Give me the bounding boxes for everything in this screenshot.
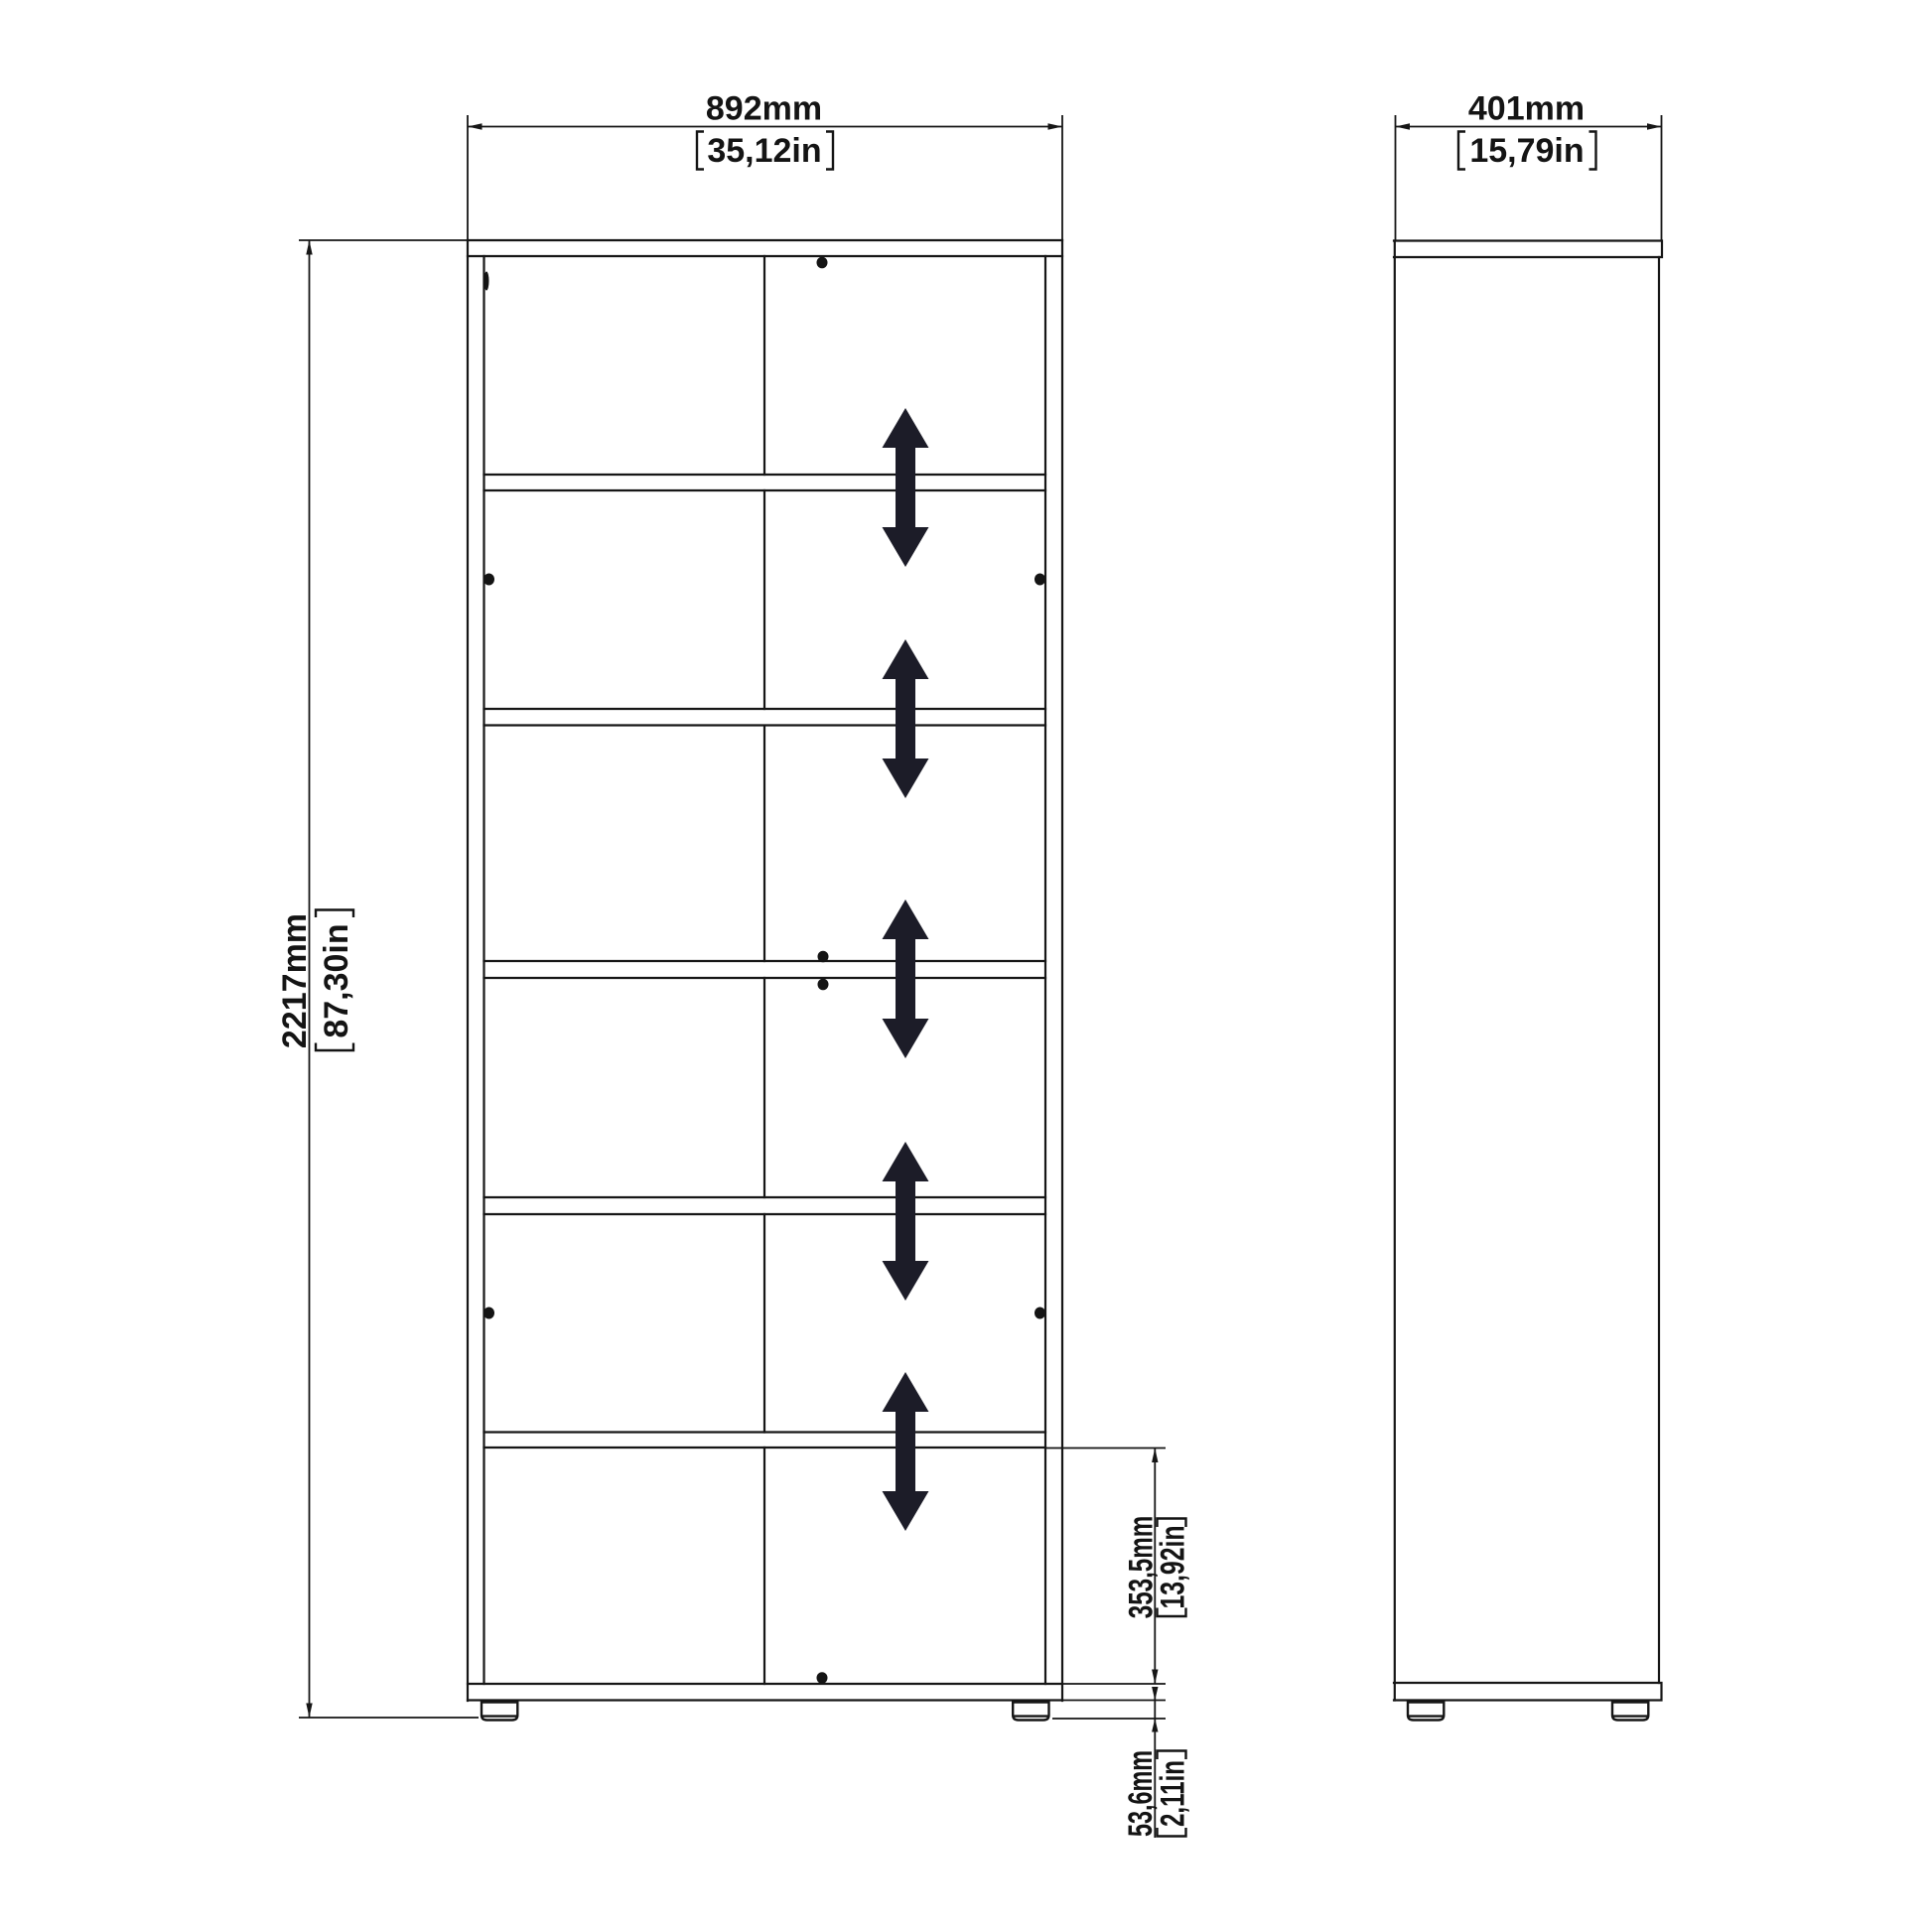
svg-text:87,30in: 87,30in: [318, 923, 355, 1037]
svg-text:15,79in: 15,79in: [1469, 132, 1584, 170]
svg-text:2217mm: 2217mm: [276, 913, 314, 1048]
svg-text:892mm: 892mm: [706, 90, 822, 128]
svg-text:401mm: 401mm: [1468, 90, 1585, 128]
svg-text:2,11in: 2,11in: [1155, 1760, 1192, 1827]
svg-text:13,92in: 13,92in: [1155, 1526, 1192, 1609]
svg-text:35,12in: 35,12in: [707, 132, 821, 170]
